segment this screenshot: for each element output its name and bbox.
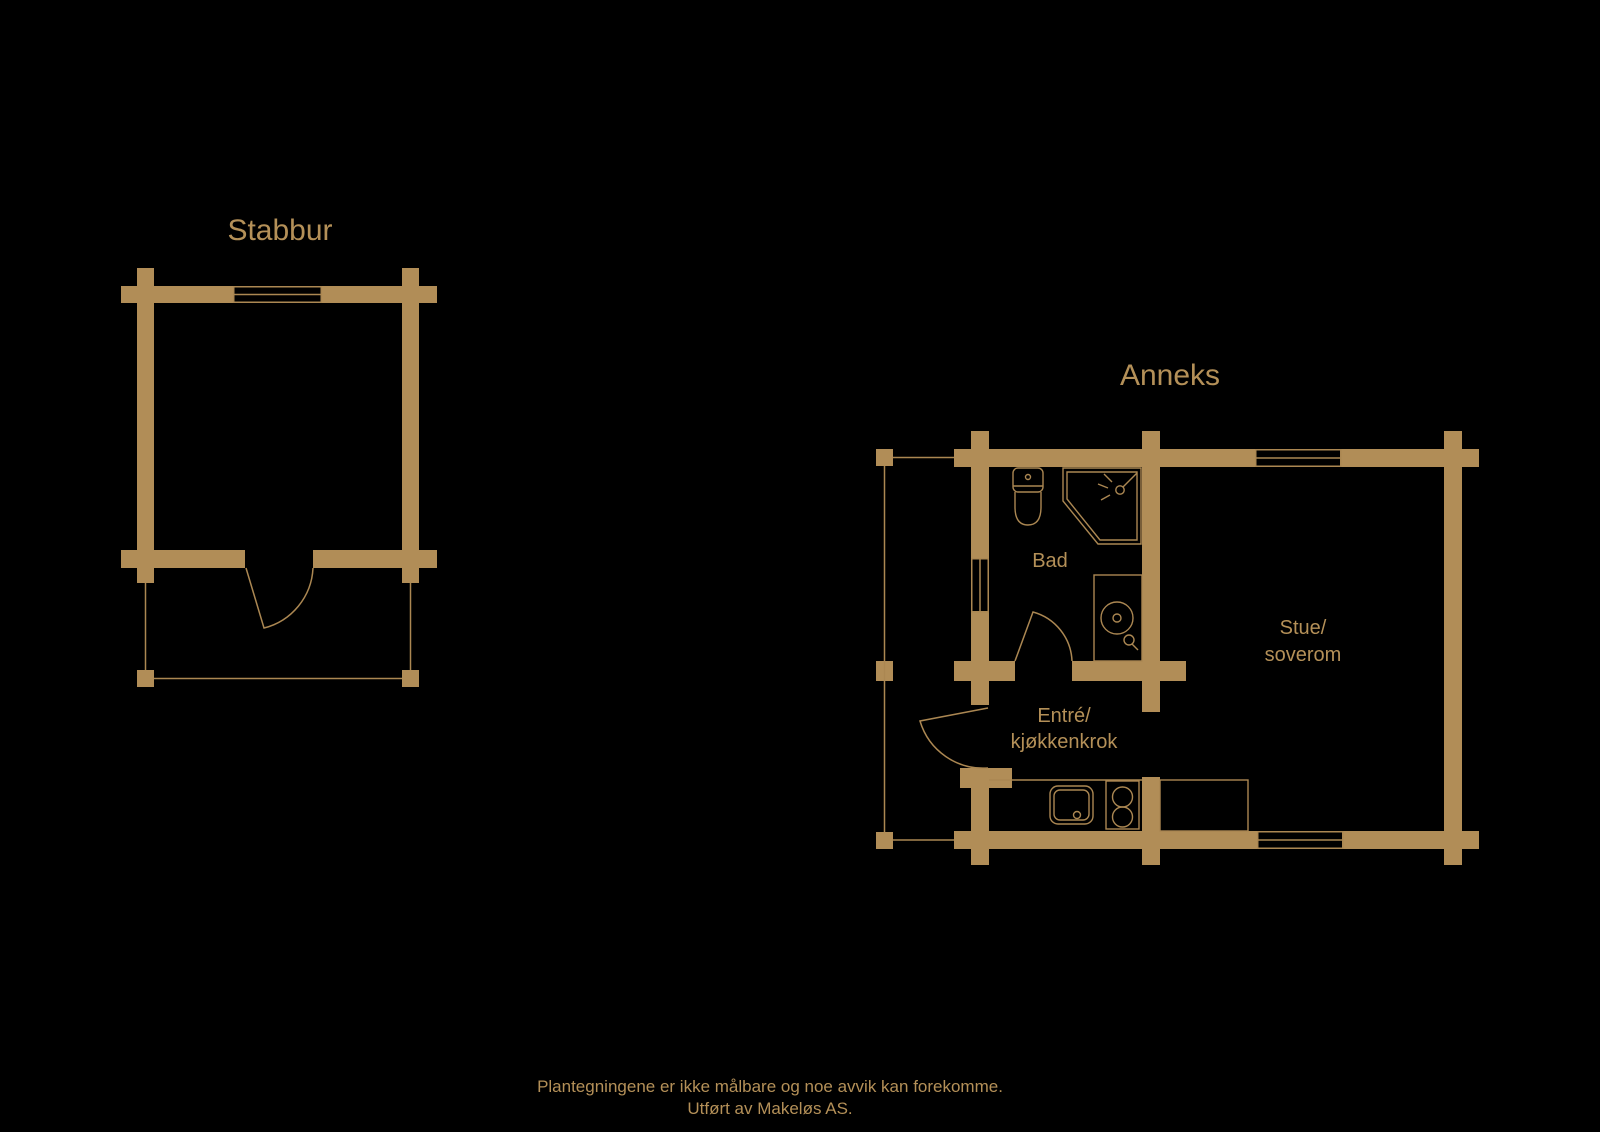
shower-spray-line [1104, 474, 1112, 482]
toilet-bowl [1015, 492, 1041, 525]
porch-post [876, 449, 893, 466]
shower-head [1116, 486, 1124, 494]
shower-arm [1123, 473, 1137, 487]
wall-left [137, 268, 154, 583]
anneks-floorplan: Anneks [876, 359, 1479, 865]
room-label-stue-line2: soverom [1265, 644, 1342, 666]
floorplan-page: Stabbur Anneks [0, 0, 1600, 1132]
stove-burner [1113, 787, 1133, 807]
washing-machine-icon [1094, 575, 1142, 661]
stabbur-window-top [234, 287, 322, 303]
wall-bottom-right-segment [313, 550, 437, 568]
anneks-window-top [1256, 450, 1341, 467]
bathroom-door-swing-icon [1015, 612, 1072, 661]
stabbur-walls [121, 268, 437, 583]
anneks-title: Anneks [1120, 359, 1220, 392]
wall-interior-vertical-lower [1142, 777, 1160, 865]
anneks-porch [876, 449, 954, 849]
footer-disclaimer: Plantegningene er ikke målbare og noe av… [537, 1077, 1003, 1118]
sink-drain [1074, 812, 1081, 819]
washing-machine-handle [1132, 644, 1138, 650]
wall-west-door-jamb [960, 768, 1012, 788]
stabbur-floorplan: Stabbur [121, 214, 437, 687]
stabbur-porch [137, 583, 419, 687]
wall-east [1444, 431, 1462, 865]
washing-machine-drum [1101, 602, 1133, 634]
stove-burner [1113, 807, 1133, 827]
room-label-entre-line1: Entré/ [1037, 705, 1091, 727]
shower-spray-line [1101, 495, 1110, 500]
anneks-walls [954, 431, 1479, 865]
shower-spray-line [1098, 484, 1108, 488]
wall-bottom-left-segment [121, 550, 245, 568]
wall-interior-horizontal-left [954, 661, 1015, 681]
room-label-stue-line1: Stue/ [1280, 617, 1327, 639]
entrance-door-swing-icon [920, 708, 988, 768]
toilet-flush-button [1026, 475, 1031, 480]
wall-interior-horizontal-right [1072, 661, 1186, 681]
porch-post [402, 670, 419, 687]
shower-icon [1063, 468, 1141, 544]
counter-right-section [1160, 780, 1248, 831]
anneks-window-bottom [1258, 832, 1343, 849]
room-label-entre-line2: kjøkkenkrok [1011, 731, 1119, 753]
wall-top [954, 449, 1479, 467]
room-label-bad: Bad [1032, 550, 1068, 572]
toilet-icon [1013, 468, 1043, 525]
washing-machine-drum-center [1113, 614, 1121, 622]
stove-body [1106, 781, 1139, 829]
shower-tray-inner [1067, 472, 1137, 540]
stabbur-title: Stabbur [227, 214, 332, 247]
porch-post [137, 670, 154, 687]
stove-icon [1106, 781, 1139, 829]
disclaimer-line2: Utført av Makeløs AS. [687, 1099, 852, 1118]
sink-basin [1054, 790, 1089, 820]
wall-bottom [954, 831, 1479, 849]
entrance-door-swing-icon [246, 568, 313, 628]
disclaimer-line1: Plantegningene er ikke målbare og noe av… [537, 1077, 1003, 1096]
shower-tray-outer [1063, 468, 1141, 544]
porch-post [876, 832, 893, 849]
anneks-window-west [972, 559, 989, 612]
wall-right [402, 268, 419, 583]
washing-machine-knob [1124, 635, 1134, 645]
floorplan-canvas: Stabbur Anneks [0, 0, 1600, 1132]
kitchen-sink-icon [1050, 786, 1093, 824]
